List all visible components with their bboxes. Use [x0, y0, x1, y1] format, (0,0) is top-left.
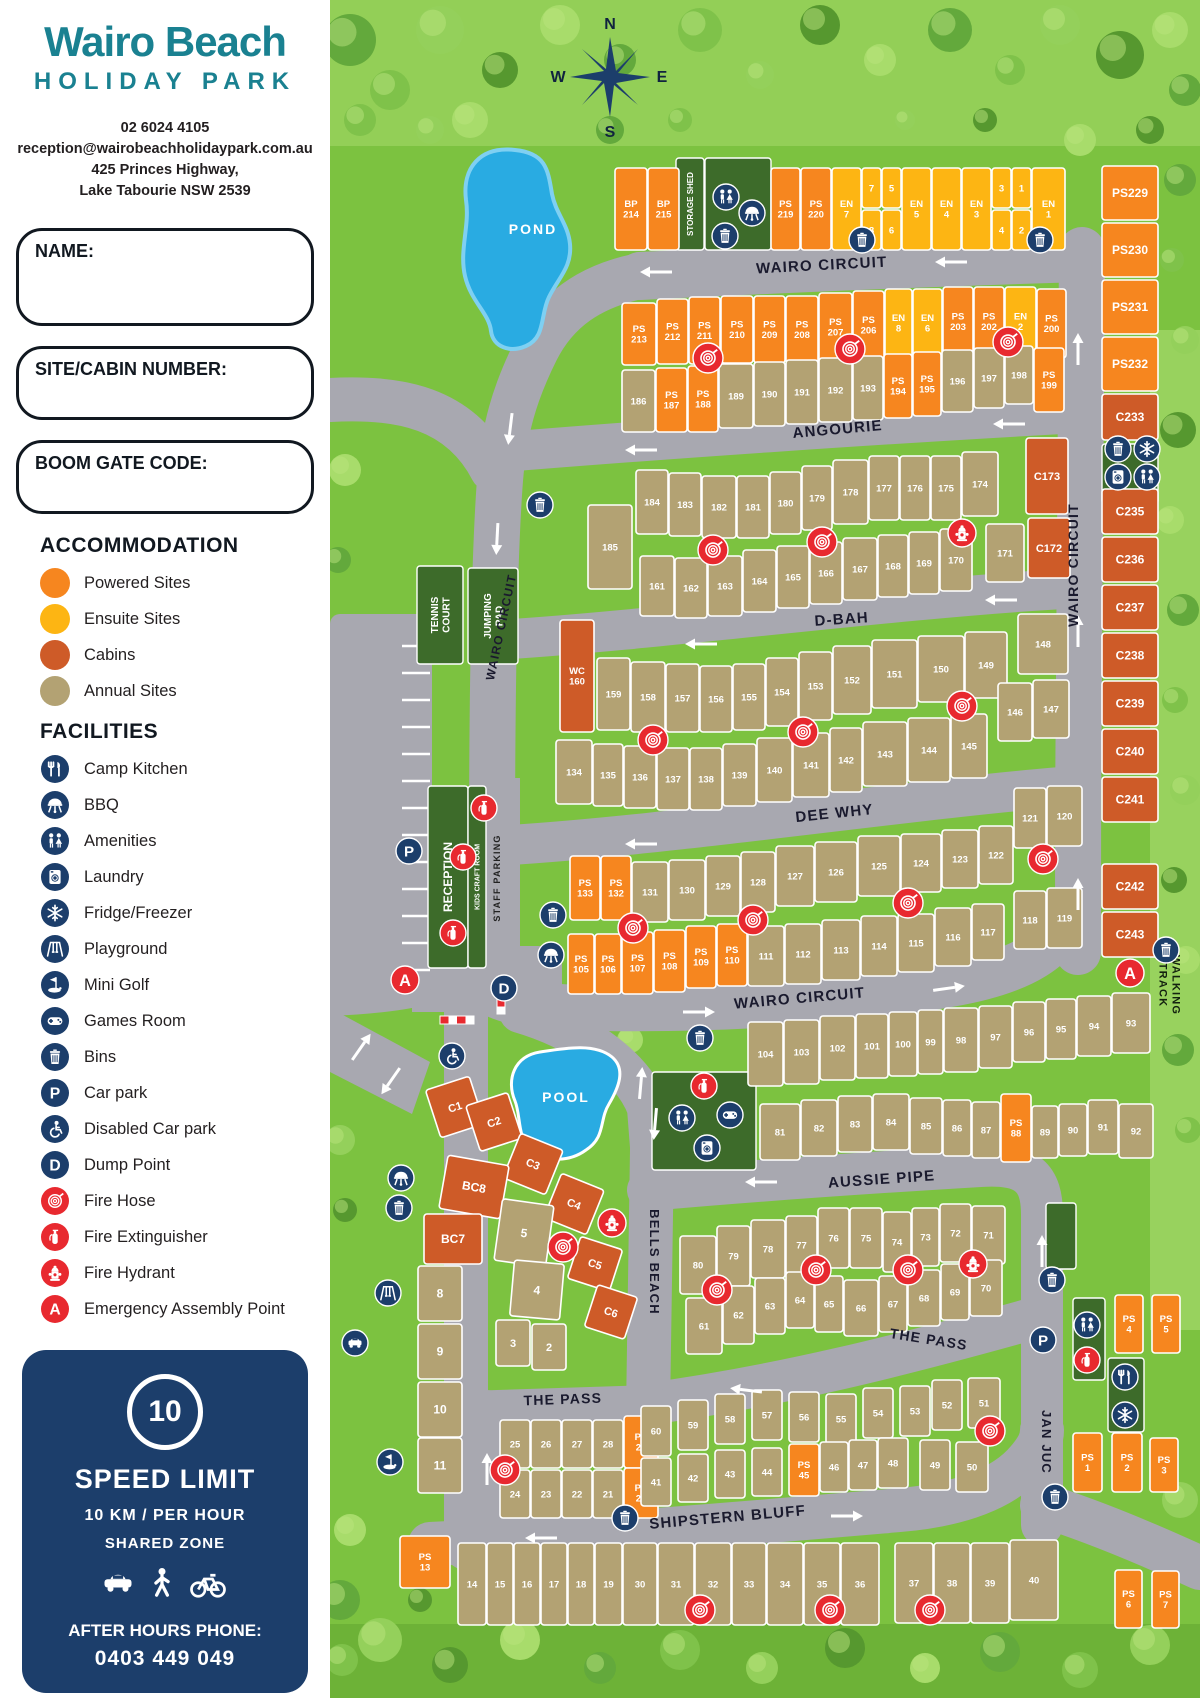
map-site: 5	[882, 168, 901, 208]
facility-legend-item: Fire Hose	[40, 1186, 330, 1216]
svg-text:PS194: PS194	[890, 376, 907, 397]
pedestrian-icon	[156, 1568, 168, 1595]
svg-text:95: 95	[1056, 1024, 1067, 1035]
map-site: 78	[751, 1220, 785, 1278]
svg-text:97: 97	[990, 1032, 1001, 1043]
svg-text:PS132: PS132	[608, 878, 624, 899]
firehose-icon	[815, 1595, 845, 1625]
svg-text:C235: C235	[1116, 505, 1145, 519]
site-cabin-number-field[interactable]: SITE/CABIN NUMBER:	[16, 346, 314, 420]
map-site: 100	[889, 1012, 917, 1076]
water-label: POOL	[542, 1089, 590, 1105]
svg-text:67: 67	[888, 1299, 899, 1310]
map-site: EN5	[902, 168, 931, 250]
tree	[344, 104, 376, 136]
firehose-icon	[618, 913, 648, 943]
map-site: PS203	[943, 287, 973, 356]
map-site: 66	[844, 1280, 878, 1336]
tree	[452, 102, 488, 138]
svg-text:55: 55	[836, 1414, 847, 1425]
svg-text:170: 170	[948, 555, 964, 566]
phone-number: 02 6024 4105	[0, 118, 330, 139]
svg-text:28: 28	[603, 1439, 614, 1450]
facility-legend-item: Games Room	[40, 1006, 330, 1036]
map-site: BC8	[439, 1155, 509, 1219]
map-site: PS208	[786, 296, 818, 363]
map-site: 2	[532, 1324, 566, 1370]
svg-text:PS202: PS202	[981, 312, 997, 333]
tree	[864, 44, 896, 76]
tree	[1062, 1652, 1098, 1688]
map-site: C242	[1102, 864, 1158, 909]
svg-text:2: 2	[546, 1342, 552, 1354]
svg-text:162: 162	[683, 583, 699, 594]
hydrant-icon	[40, 1258, 70, 1288]
disabled-icon	[439, 1043, 465, 1069]
map-site: EN6	[913, 289, 942, 357]
svg-text:32: 32	[708, 1579, 719, 1590]
svg-text:P: P	[404, 843, 414, 860]
svg-text:190: 190	[762, 389, 778, 400]
map-site: 28	[593, 1420, 623, 1468]
svg-text:64: 64	[795, 1295, 806, 1306]
map-site: 112	[785, 924, 821, 984]
speed-limit-card: 10 SPEED LIMIT 10 KM / PER HOUR SHARED Z…	[22, 1350, 308, 1693]
map-site: 175	[931, 456, 961, 520]
svg-text:137: 137	[665, 774, 681, 785]
map-site: 124	[901, 834, 941, 892]
accommodation-legend-item: Cabins	[40, 640, 330, 670]
facility-legend-item: D Dump Point	[40, 1150, 330, 1180]
map-site: 103	[784, 1020, 819, 1084]
bicycle-icon	[192, 1575, 225, 1596]
bbq-icon	[739, 200, 765, 226]
amen-icon	[669, 1105, 695, 1131]
map-site: 184	[636, 470, 668, 534]
svg-text:70: 70	[981, 1283, 992, 1294]
svg-text:PS88: PS88	[1010, 1118, 1023, 1139]
facility-legend-item: Fridge/Freezer	[40, 898, 330, 928]
firehose-icon	[788, 717, 818, 747]
facility-item-label: Fire Extinguisher	[84, 1228, 208, 1247]
svg-text:PS211: PS211	[697, 321, 713, 342]
map-site: PS231	[1102, 280, 1158, 334]
svg-text:153: 153	[808, 681, 824, 692]
tree	[1161, 867, 1187, 893]
map-site: PS194	[884, 354, 912, 418]
after-hours-phone: 0403 449 049	[32, 1647, 298, 1671]
map-site: C240	[1102, 729, 1158, 774]
accommodation-legend: Powered Sites Ensuite Sites Cabins Annua…	[0, 568, 330, 706]
map-site: 189	[719, 364, 753, 428]
carpark-icon: P	[40, 1078, 70, 1108]
svg-text:117: 117	[980, 927, 995, 938]
map-site: 114	[861, 916, 897, 976]
svg-text:5: 5	[889, 183, 895, 194]
bins-icon	[687, 1025, 713, 1051]
map-site: 47	[849, 1440, 877, 1490]
svg-text:92: 92	[1131, 1126, 1142, 1137]
map-site: 39	[971, 1543, 1009, 1623]
tree	[500, 1620, 540, 1660]
minigolf-icon	[40, 970, 70, 1000]
svg-text:185: 185	[602, 542, 619, 553]
svg-text:101: 101	[864, 1041, 881, 1052]
map-site: PS3	[1150, 1438, 1178, 1492]
facility-legend-item: Camp Kitchen	[40, 754, 330, 784]
svg-text:111: 111	[759, 951, 775, 962]
boom-gate-code-field[interactable]: BOOM GATE CODE:	[16, 440, 314, 514]
bbq-icon	[388, 1165, 414, 1191]
car-icon	[105, 1575, 132, 1592]
tree	[416, 116, 444, 144]
building: TENNISCOURT	[417, 566, 463, 664]
tree	[416, 6, 464, 54]
map-site: 7	[862, 168, 881, 208]
dump-icon: D	[40, 1150, 70, 1180]
svg-text:36: 36	[855, 1579, 866, 1590]
svg-text:94: 94	[1089, 1021, 1100, 1032]
svg-text:159: 159	[606, 689, 622, 700]
svg-text:C172: C172	[1036, 543, 1062, 555]
svg-text:103: 103	[794, 1047, 810, 1058]
svg-text:189: 189	[728, 391, 744, 402]
map-site: 3	[992, 168, 1011, 208]
bins-icon	[540, 902, 566, 928]
svg-text:135: 135	[600, 770, 617, 781]
svg-text:99: 99	[925, 1037, 936, 1048]
map-site: 18	[568, 1543, 594, 1625]
map-site: 16	[514, 1543, 540, 1625]
svg-text:74: 74	[892, 1237, 903, 1248]
bbq-icon	[538, 942, 564, 968]
assembly-icon: A	[40, 1294, 70, 1324]
name-field[interactable]: NAME:	[16, 228, 314, 326]
bbq-icon	[40, 790, 70, 820]
map-site: 59	[678, 1400, 708, 1450]
tree	[980, 1632, 1020, 1672]
info-panel: Wairo Beach HOLIDAY PARK 02 6024 4105 re…	[0, 0, 330, 1698]
accommodation-item-label: Cabins	[84, 646, 135, 665]
tree	[668, 108, 692, 132]
svg-text:152: 152	[844, 675, 860, 686]
map-site: 154	[766, 658, 798, 726]
road-name-label: WAIRO CIRCUIT	[1065, 503, 1081, 627]
svg-text:183: 183	[677, 500, 693, 511]
map-site: 129	[706, 856, 740, 916]
map-site: 91	[1088, 1100, 1118, 1154]
email-address: reception@wairobeachholidaypark.com.au	[0, 139, 330, 160]
road-name-label: BELLS BEACH	[647, 1209, 662, 1315]
firehose-icon	[638, 725, 668, 755]
svg-text:A: A	[399, 972, 411, 990]
svg-text:104: 104	[758, 1049, 775, 1060]
svg-text:PS110: PS110	[724, 945, 739, 966]
accommodation-item-label: Ensuite Sites	[84, 610, 180, 629]
laundry-icon	[694, 1135, 720, 1161]
map-site: 104	[748, 1022, 783, 1086]
facility-legend-item: BBQ	[40, 790, 330, 820]
firehose-icon	[490, 1455, 520, 1485]
map-site: EN8	[885, 289, 912, 357]
car-park-lot	[330, 614, 432, 994]
facilities-legend: Camp Kitchen BBQ Amenities Laundry Fridg…	[0, 754, 330, 1324]
bins-icon	[40, 1042, 70, 1072]
svg-text:176: 176	[907, 483, 923, 494]
svg-text:134: 134	[566, 767, 583, 778]
amen-icon	[1074, 1312, 1100, 1338]
map-site: 146	[998, 683, 1032, 741]
map-site: PS6	[1115, 1570, 1142, 1628]
map-site: 126	[815, 842, 857, 902]
map-site: BP214	[615, 168, 647, 250]
map-site: C235	[1102, 489, 1158, 534]
map-site: C241	[1102, 777, 1158, 822]
firehose-icon	[1028, 844, 1058, 874]
facility-item-label: Games Room	[84, 1012, 186, 1031]
svg-text:136: 136	[632, 772, 648, 783]
map-site: 90	[1059, 1104, 1087, 1156]
map-site: 178	[833, 460, 868, 524]
facility-item-label: Playground	[84, 940, 167, 959]
svg-text:8: 8	[437, 1287, 444, 1301]
svg-text:23: 23	[541, 1489, 552, 1500]
shared-zone-icons	[32, 1564, 298, 1607]
svg-text:98: 98	[956, 1035, 967, 1046]
svg-text:3: 3	[999, 183, 1004, 194]
map-site: 34	[767, 1543, 803, 1625]
map-site: 83	[838, 1096, 872, 1152]
facility-item-label: Laundry	[84, 868, 144, 887]
svg-text:2: 2	[1019, 225, 1024, 236]
firehose-icon	[548, 1232, 578, 1262]
svg-text:46: 46	[829, 1462, 840, 1473]
svg-text:123: 123	[952, 854, 968, 865]
facility-item-label: Bins	[84, 1048, 116, 1067]
svg-text:15: 15	[495, 1579, 506, 1590]
svg-text:131: 131	[642, 887, 659, 898]
map-site: 134	[556, 740, 592, 804]
svg-text:44: 44	[762, 1467, 773, 1478]
map-site: 102	[820, 1016, 855, 1080]
map-site: PS199	[1034, 348, 1064, 412]
ext-icon	[450, 844, 476, 870]
svg-text:113: 113	[833, 945, 848, 956]
map-site: PS105	[568, 934, 594, 994]
facility-item-label: Dump Point	[84, 1156, 170, 1175]
svg-text:121: 121	[1022, 813, 1039, 824]
svg-text:54: 54	[873, 1408, 884, 1419]
facility-item-label: Fire Hose	[84, 1192, 156, 1211]
accommodation-item-label: Powered Sites	[84, 574, 190, 593]
map-site: PS132	[601, 856, 631, 920]
bins-icon	[1105, 436, 1131, 462]
map-site: PS230	[1102, 223, 1158, 277]
svg-text:24: 24	[510, 1489, 521, 1500]
facility-item-label: Car park	[84, 1084, 147, 1103]
svg-text:P: P	[1038, 1332, 1048, 1349]
svg-text:151: 151	[887, 669, 904, 680]
svg-text:16: 16	[522, 1579, 533, 1590]
map-site: 93	[1112, 993, 1150, 1053]
map-site: PS45	[789, 1444, 819, 1496]
svg-text:61: 61	[699, 1321, 710, 1332]
map-site: 63	[755, 1278, 785, 1334]
suburb-address: Lake Tabourie NSW 2539	[0, 181, 330, 202]
facility-legend-item: Playground	[40, 934, 330, 964]
facility-legend-item: Mini Golf	[40, 970, 330, 1000]
map-site: 26	[531, 1420, 561, 1468]
map-site: 130	[669, 860, 705, 920]
facility-item-label: Camp Kitchen	[84, 760, 188, 779]
svg-text:PS13: PS13	[419, 1552, 432, 1573]
tree	[910, 1653, 940, 1683]
map-site: 22	[562, 1470, 592, 1518]
svg-text:6: 6	[889, 225, 894, 236]
map-site: 159	[597, 658, 630, 730]
map-site: WC160	[560, 620, 594, 732]
map-site: 121	[1014, 788, 1046, 848]
tree	[895, 110, 915, 130]
tree	[1167, 594, 1199, 626]
map-site: PS106	[595, 934, 621, 994]
svg-text:17: 17	[549, 1579, 560, 1590]
svg-text:3: 3	[510, 1338, 516, 1350]
facility-legend-item: Amenities	[40, 826, 330, 856]
svg-text:41: 41	[651, 1477, 662, 1488]
map-site: 169	[909, 532, 939, 594]
disabled-icon	[40, 1114, 70, 1144]
svg-text:140: 140	[767, 765, 783, 776]
map-site: 125	[858, 836, 900, 896]
map-site: C233	[1102, 394, 1158, 440]
tree	[1040, 5, 1080, 45]
map-site: PS4	[1115, 1295, 1143, 1353]
map-site: 75	[850, 1208, 882, 1268]
road-name-label: WALKINGTRACK	[1157, 955, 1182, 1015]
map-site: 3	[496, 1320, 530, 1366]
tree	[334, 1514, 366, 1546]
map-site: C236	[1102, 537, 1158, 582]
svg-text:52: 52	[942, 1400, 953, 1411]
tree	[333, 1198, 357, 1222]
map-site: 185	[588, 505, 632, 589]
svg-text:181: 181	[745, 502, 762, 513]
svg-text:120: 120	[1057, 811, 1073, 822]
svg-text:146: 146	[1007, 707, 1023, 718]
svg-text:PS220: PS220	[808, 199, 824, 220]
tree	[1175, 1117, 1200, 1143]
speed-limit-detail: 10 KM / PER HOUR	[32, 1507, 298, 1525]
map-site: 48	[878, 1438, 908, 1488]
map-site: 8	[418, 1266, 462, 1321]
bins-icon	[612, 1505, 638, 1531]
speed-limit-title: SPEED LIMIT	[32, 1464, 298, 1495]
map-site: 19	[595, 1543, 622, 1625]
map-site: PS109	[686, 926, 716, 988]
map-site: 46	[820, 1442, 848, 1492]
svg-text:E: E	[657, 69, 668, 86]
svg-text:96: 96	[1024, 1027, 1035, 1038]
map-site: 41	[641, 1458, 671, 1506]
svg-text:30: 30	[635, 1579, 646, 1590]
map-site: PS133	[570, 856, 600, 920]
firehose-icon	[947, 691, 977, 721]
amen-icon	[40, 826, 70, 856]
map-site: PS110	[717, 924, 747, 986]
minigolf-icon	[377, 1449, 403, 1475]
map-site: 27	[562, 1420, 592, 1468]
svg-text:PS232: PS232	[1112, 357, 1148, 371]
svg-text:PS212: PS212	[665, 322, 681, 343]
tree	[1170, 775, 1200, 805]
map-site: PS219	[771, 168, 800, 250]
map-site: C172	[1028, 518, 1070, 578]
bins-icon	[386, 1195, 412, 1221]
svg-text:9: 9	[437, 1345, 444, 1359]
svg-text:72: 72	[950, 1228, 961, 1239]
tree	[408, 1588, 432, 1612]
svg-text:PS45: PS45	[798, 1460, 811, 1481]
svg-text:60: 60	[651, 1426, 662, 1437]
svg-text:40: 40	[1029, 1575, 1040, 1586]
svg-text:PS208: PS208	[794, 320, 810, 341]
svg-text:122: 122	[988, 850, 1004, 861]
svg-text:65: 65	[824, 1299, 835, 1310]
map-site: C243	[1102, 912, 1158, 957]
hydrant-icon	[948, 519, 976, 547]
svg-text:PS231: PS231	[1112, 300, 1148, 314]
map-site: 156	[700, 666, 732, 732]
map-site: PS13	[400, 1536, 450, 1588]
tree	[432, 1647, 468, 1683]
site-color-swatch	[40, 640, 70, 670]
bins-icon	[1027, 227, 1053, 253]
svg-text:50: 50	[967, 1462, 978, 1473]
tree	[800, 5, 840, 45]
name-field-label: NAME:	[35, 241, 295, 262]
svg-text:31: 31	[671, 1579, 682, 1590]
svg-text:A: A	[1124, 965, 1136, 983]
svg-text:130: 130	[679, 885, 695, 896]
map-site: 14	[458, 1543, 486, 1625]
svg-text:C238: C238	[1116, 649, 1145, 663]
map-site: 89	[1032, 1106, 1058, 1158]
firehose-icon	[693, 343, 723, 373]
svg-text:D: D	[49, 1158, 60, 1175]
bins-icon	[712, 223, 738, 249]
svg-text:PS209: PS209	[762, 320, 778, 341]
svg-text:147: 147	[1043, 704, 1059, 715]
firehose-icon	[893, 888, 923, 918]
map-site: 147	[1033, 680, 1069, 738]
firehose-icon	[698, 535, 728, 565]
svg-text:115: 115	[908, 938, 924, 949]
map-site: 186	[622, 370, 655, 432]
tree	[1156, 506, 1184, 534]
map-site: 86	[943, 1100, 971, 1156]
svg-text:84: 84	[886, 1117, 897, 1128]
svg-text:158: 158	[640, 692, 656, 703]
speed-limit-sign: 10	[127, 1374, 203, 1450]
svg-text:27: 27	[572, 1439, 583, 1450]
map-site: 84	[873, 1094, 909, 1150]
svg-text:STORAGE SHED: STORAGE SHED	[686, 172, 695, 236]
map-site: 101	[856, 1014, 888, 1078]
accommodation-item-label: Annual Sites	[84, 682, 177, 701]
laundry-icon	[1105, 464, 1131, 490]
svg-text:C243: C243	[1116, 928, 1145, 942]
